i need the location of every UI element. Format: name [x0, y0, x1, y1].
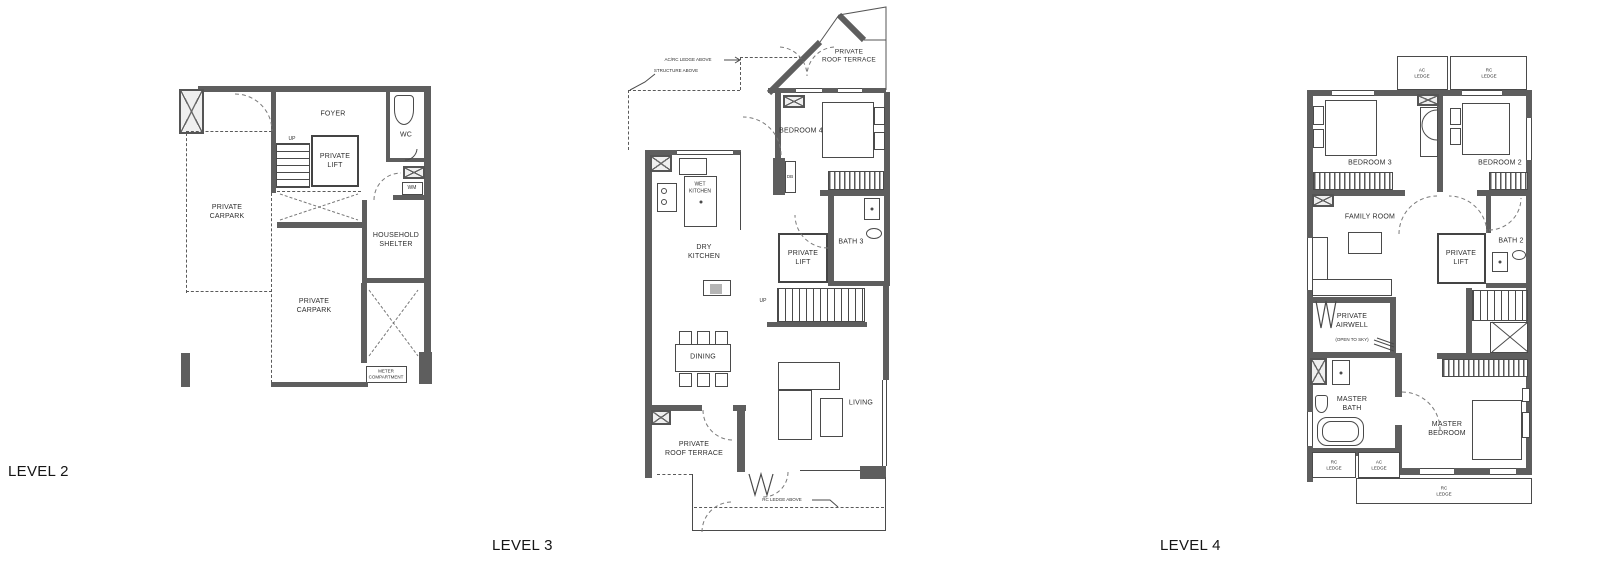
- room-label-living: LIVING: [849, 398, 873, 407]
- diagonal-wall: [839, 15, 864, 40]
- wall: [271, 382, 368, 387]
- sofa: [778, 390, 812, 440]
- floorplan-sheet: FOYER UP PRIVATE LIFT WC WM PRIVATE CARP…: [0, 0, 1600, 564]
- ledge-outline: [657, 474, 692, 475]
- bedside-table: [1313, 129, 1324, 148]
- ac-unit: [1310, 358, 1327, 385]
- room-label-bath3: BATH 3: [838, 237, 863, 246]
- ledge-label: RC LEDGE: [1326, 459, 1341, 470]
- ac-unit: [1417, 94, 1439, 106]
- carpark-boundary: [186, 131, 272, 132]
- bedside-table: [1522, 412, 1530, 438]
- wall: [1390, 297, 1396, 358]
- room-label-master-bedroom: MASTER BEDROOM: [1428, 420, 1466, 438]
- room-label-master-bath: MASTER BATH: [1337, 395, 1367, 413]
- window: [1307, 412, 1313, 446]
- ledge-label: RC LEDGE: [1481, 67, 1496, 78]
- airwell-louver-zigzag: [1316, 301, 1336, 328]
- ledge-outline: [692, 530, 886, 531]
- kitchen-counter: [679, 158, 707, 175]
- rc-ledge-line: [694, 507, 884, 508]
- window: [1526, 118, 1532, 160]
- room-label-private-roof-terrace: PRIVATE ROOF TERRACE: [822, 49, 876, 66]
- stove-burner: [661, 199, 667, 205]
- ac-unit: [783, 95, 805, 108]
- room-label-wc: WC: [400, 130, 412, 139]
- structure-column: [179, 89, 204, 134]
- stair-direction-label: UP: [760, 298, 767, 305]
- bed: [1325, 100, 1377, 156]
- room-label-private-lift: PRIVATE LIFT: [788, 249, 818, 267]
- room-label-meter-compartment: METER COMPARTMENT: [369, 368, 404, 379]
- annotation-leader: [630, 74, 655, 90]
- toilet: [1315, 395, 1328, 413]
- appliance-label-wm: WM: [408, 185, 417, 192]
- ledge-outline: [740, 57, 741, 90]
- folding-door-zigzag: [749, 474, 773, 495]
- wall: [1395, 353, 1402, 397]
- wall: [424, 86, 431, 360]
- dining-chair: [679, 373, 692, 387]
- ledge-label: AC LEDGE: [1414, 67, 1429, 78]
- bed: [1462, 103, 1510, 155]
- window: [1490, 468, 1516, 475]
- ledge-label: AC LEDGE: [1371, 459, 1386, 470]
- wash-basin: [866, 228, 882, 239]
- dining-chair: [679, 331, 692, 345]
- room-label-private-lift: PRIVATE LIFT: [1446, 249, 1476, 267]
- room-label-private-roof-terrace: PRIVATE ROOF TERRACE: [665, 440, 723, 458]
- bedside-table: [1450, 128, 1461, 145]
- window: [796, 88, 822, 93]
- dining-chair: [715, 331, 728, 345]
- room-label-private-lift: PRIVATE LIFT: [320, 152, 350, 170]
- door-swing-arc: [1489, 198, 1521, 230]
- door-swing-arc: [235, 94, 272, 131]
- staircase: [777, 288, 865, 322]
- room-label-dining: DINING: [690, 352, 716, 361]
- door-swing-arc: [763, 472, 788, 497]
- note-open-to-sky: (OPEN TO SKY): [1335, 337, 1368, 343]
- toilet: [394, 95, 414, 125]
- room-label-private-carpark: PRIVATE CARPARK: [210, 203, 245, 221]
- stair-direction-label: UP: [289, 136, 296, 143]
- bedside-table: [1522, 388, 1530, 402]
- door-swing-arc: [1399, 196, 1437, 234]
- ledge-label: RC LEDGE: [1436, 485, 1451, 496]
- dining-chair: [697, 373, 710, 387]
- room-label-family-room: FAMILY ROOM: [1345, 212, 1395, 221]
- wall: [1486, 195, 1491, 233]
- wall: [828, 281, 890, 286]
- note-rc-ledge-above: RC LEDGE ABOVE: [762, 497, 802, 503]
- door-swing-arc: [1449, 196, 1487, 233]
- level3-title: LEVEL 3: [492, 537, 553, 554]
- bathroom-sink: [1332, 360, 1350, 385]
- room-label-bedroom2: BEDROOM 2: [1478, 158, 1522, 167]
- door-swing-arc: [703, 410, 733, 440]
- wall: [386, 158, 430, 162]
- wall: [860, 466, 886, 479]
- room-label-foyer: FOYER: [320, 109, 345, 118]
- void-edge: [277, 191, 361, 192]
- window: [1332, 90, 1374, 96]
- wall: [419, 352, 432, 384]
- bedside-table: [874, 132, 885, 150]
- void-cross: [280, 194, 358, 220]
- diagonal-wall: [769, 42, 820, 93]
- wall: [828, 195, 834, 285]
- cabinet: [1420, 107, 1438, 157]
- wall: [1312, 297, 1396, 303]
- db-label: DB: [787, 174, 793, 180]
- wall: [362, 200, 367, 283]
- room-label-bedroom3: BEDROOM 3: [1348, 158, 1392, 167]
- stair-winder: [1490, 322, 1528, 353]
- wall: [386, 91, 390, 162]
- dining-chair: [697, 331, 710, 345]
- wall: [277, 222, 367, 228]
- ledge-outline: [740, 57, 802, 58]
- wall: [393, 195, 424, 200]
- room-label-private-carpark: PRIVATE CARPARK: [297, 297, 332, 315]
- room-label-dry-kitchen: DRY KITCHEN: [688, 243, 720, 261]
- room-label-wet-kitchen: WET KITCHEN: [689, 182, 711, 195]
- stove-burner: [661, 188, 667, 194]
- wall: [645, 150, 652, 478]
- bathtub-inner: [1322, 421, 1359, 442]
- wall: [362, 278, 431, 283]
- bedside-table: [1450, 108, 1461, 125]
- room-label-household-shelter: HOUSEHOLD SHELTER: [373, 231, 419, 249]
- hob: [710, 284, 722, 294]
- annotation-leader: [812, 500, 838, 507]
- ac-unit: [651, 410, 671, 425]
- dining-chair: [715, 373, 728, 387]
- bed: [822, 102, 874, 158]
- wall: [767, 322, 867, 327]
- partition-line: [740, 152, 741, 230]
- stove: [657, 183, 677, 212]
- wall: [198, 86, 430, 92]
- window: [882, 380, 887, 466]
- note-structure-above: STRUCTURE ABOVE: [654, 68, 698, 74]
- bathroom-sink: [864, 198, 880, 220]
- room-label-bedroom4: BEDROOM 4: [779, 126, 823, 135]
- bedside-table: [1313, 106, 1324, 125]
- ledge-outline: [628, 90, 740, 91]
- bathroom-sink: [1492, 252, 1508, 272]
- window: [677, 150, 733, 155]
- coffee-table: [820, 398, 843, 437]
- window: [1420, 468, 1454, 475]
- ledge-outline: [885, 477, 886, 531]
- staircase: [276, 143, 310, 188]
- wall: [737, 405, 745, 472]
- note-acrc-ledge-above: AC/RC LEDGE ABOVE: [664, 57, 711, 63]
- bedside-table: [874, 107, 885, 125]
- carpark-boundary: [271, 193, 272, 383]
- sofa: [1312, 279, 1392, 296]
- bed: [1472, 400, 1522, 460]
- wall: [883, 285, 889, 380]
- wardrobe: [1442, 359, 1528, 377]
- basin-fixture: [403, 166, 425, 179]
- staircase: [1472, 290, 1528, 321]
- wall: [361, 283, 367, 363]
- window: [838, 88, 862, 93]
- level2-title: LEVEL 2: [8, 463, 69, 480]
- wardrobe: [1489, 172, 1528, 190]
- carpark-boundary: [186, 291, 272, 292]
- sofa: [778, 362, 840, 390]
- threshold-line: [800, 470, 860, 471]
- annotation-leader: [724, 57, 740, 63]
- room-label-bath2: BATH 2: [1498, 236, 1523, 245]
- wardrobe: [828, 171, 884, 190]
- ledge-outline: [692, 474, 693, 531]
- pillar: [181, 353, 190, 387]
- terrace-outline: [820, 7, 886, 42]
- wash-basin: [1512, 250, 1526, 260]
- room-label-private-airwell: PRIVATE AIRWELL: [1336, 312, 1368, 330]
- wardrobe: [1313, 172, 1393, 190]
- level4-title: LEVEL 4: [1160, 537, 1221, 554]
- void-cross: [369, 290, 418, 356]
- coffee-table: [1348, 232, 1382, 254]
- ac-unit: [1312, 194, 1334, 207]
- wall: [1486, 283, 1532, 288]
- carpark-boundary: [186, 133, 187, 293]
- wall: [768, 88, 886, 93]
- wall: [773, 158, 785, 195]
- ac-unit: [650, 155, 672, 172]
- window: [1462, 90, 1502, 96]
- ledge-outline: [628, 90, 629, 150]
